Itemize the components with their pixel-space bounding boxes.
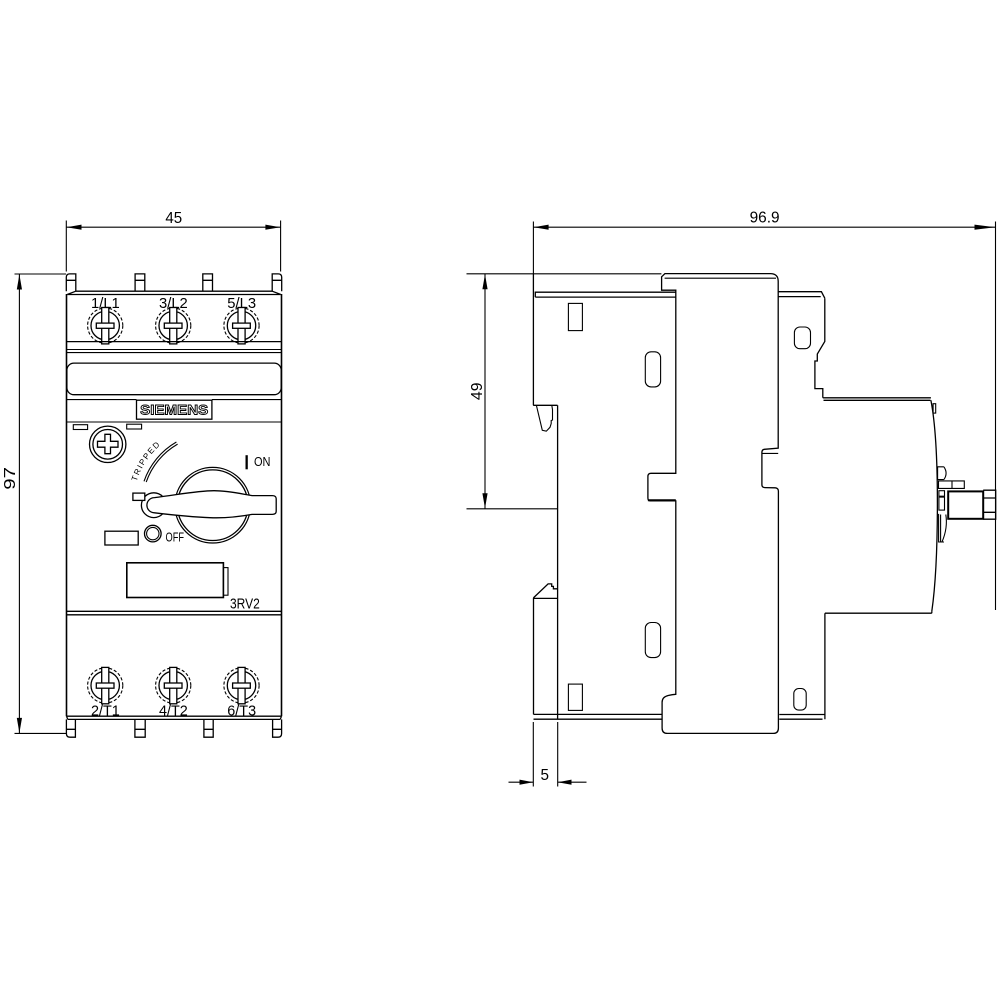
svg-text:6/T3: 6/T3: [227, 703, 256, 719]
svg-text:ON: ON: [254, 454, 271, 469]
svg-text:96.9: 96.9: [750, 210, 780, 227]
svg-text:45: 45: [165, 210, 182, 227]
svg-text:5: 5: [541, 767, 550, 784]
svg-text:OFF: OFF: [166, 529, 185, 544]
svg-text:1/L1: 1/L1: [91, 296, 120, 312]
svg-text:3/L2: 3/L2: [159, 296, 188, 312]
svg-text:5/L3: 5/L3: [227, 296, 256, 312]
svg-text:SIEMENS: SIEMENS: [140, 402, 208, 417]
svg-text:49: 49: [469, 383, 486, 401]
svg-text:3RV2: 3RV2: [230, 597, 260, 613]
svg-text:2/T1: 2/T1: [91, 703, 120, 719]
svg-text:97: 97: [2, 467, 19, 490]
svg-text:4/T2: 4/T2: [159, 703, 188, 719]
